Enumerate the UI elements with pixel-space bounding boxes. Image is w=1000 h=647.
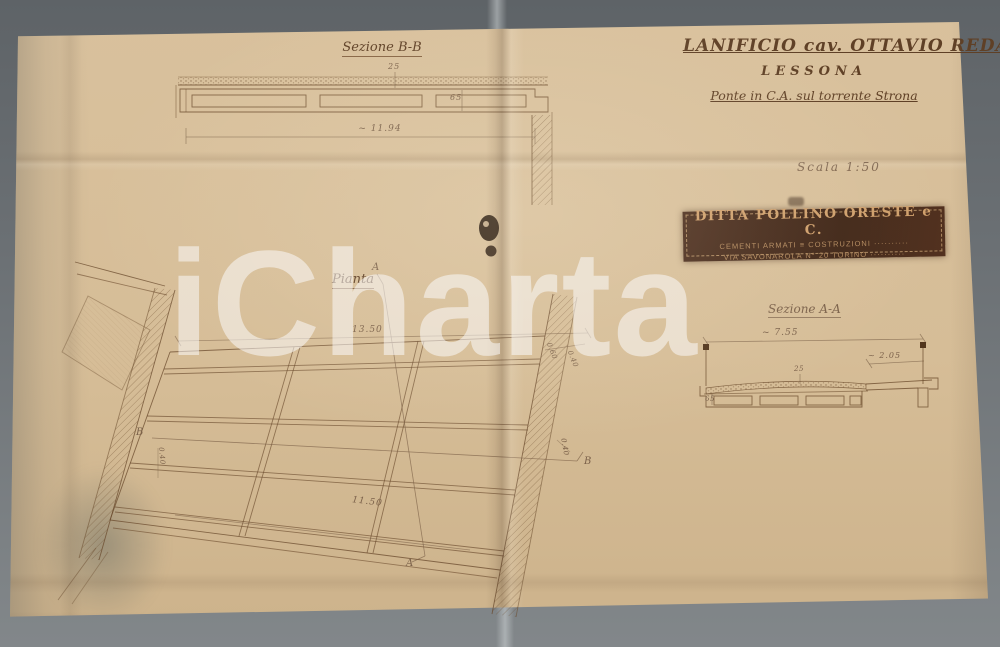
- section-aa-dim-depth: 65: [705, 395, 715, 403]
- ink-blot: [479, 215, 499, 257]
- plan-title-text: Pianta: [332, 272, 374, 289]
- company-stamp-border: DITTA POLLINO ORESTE e C. CEMENTI ARMATI…: [686, 209, 943, 256]
- section-aa-dim-sidewalk: ~ 2.05: [868, 351, 901, 360]
- section-aa-dim-total: ~ 7.55: [762, 328, 798, 338]
- photo-of-technical-drawing: { "photo": { "watermark_text": "iCharta"…: [0, 0, 1000, 647]
- section-bb-dim-slab: 25: [388, 62, 400, 71]
- stamp-company-name: DITTA POLLINO ORESTE e C.: [686, 203, 941, 240]
- section-marker-a-top: A: [372, 262, 379, 273]
- company-stamp: DITTA POLLINO ORESTE e C. CEMENTI ARMATI…: [683, 206, 946, 261]
- plan-drawing: [58, 262, 591, 617]
- title-subject: Ponte in C.A. sul torrente Strona: [683, 88, 945, 103]
- section-marker-a-bottom: A: [406, 558, 413, 569]
- section-bb-drawing: [176, 72, 552, 205]
- plan-beam-grid: [115, 341, 540, 556]
- plan-dim-width: 13.50: [352, 325, 383, 335]
- title-town: LESSONA: [683, 64, 945, 79]
- section-bb-dim-span: ~ 11.94: [300, 124, 460, 134]
- section-marker-b-left: B: [136, 427, 143, 438]
- plan-dim-small-4: 0.40: [157, 447, 167, 465]
- title-company: LANIFICIO cav. OTTAVIO REDA: [683, 36, 945, 56]
- section-aa-title-text: Sezione A-A: [768, 302, 841, 318]
- section-aa-title: Sezione A-A: [768, 302, 841, 316]
- section-bb-title-text: Sezione B-B: [342, 40, 421, 57]
- section-aa-dimension-lines: [703, 334, 926, 405]
- section-bb-dim-depth: 65: [450, 93, 462, 102]
- section-aa-dim-slab: 25: [794, 365, 804, 373]
- section-aa-drawing: [700, 334, 938, 407]
- section-bb-title: Sezione B-B: [322, 40, 442, 55]
- ink-smudge: [788, 197, 804, 206]
- scale-note: Scala 1:50: [797, 160, 881, 174]
- section-marker-b-right: B: [584, 456, 591, 467]
- plan-title: Pianta: [332, 272, 374, 287]
